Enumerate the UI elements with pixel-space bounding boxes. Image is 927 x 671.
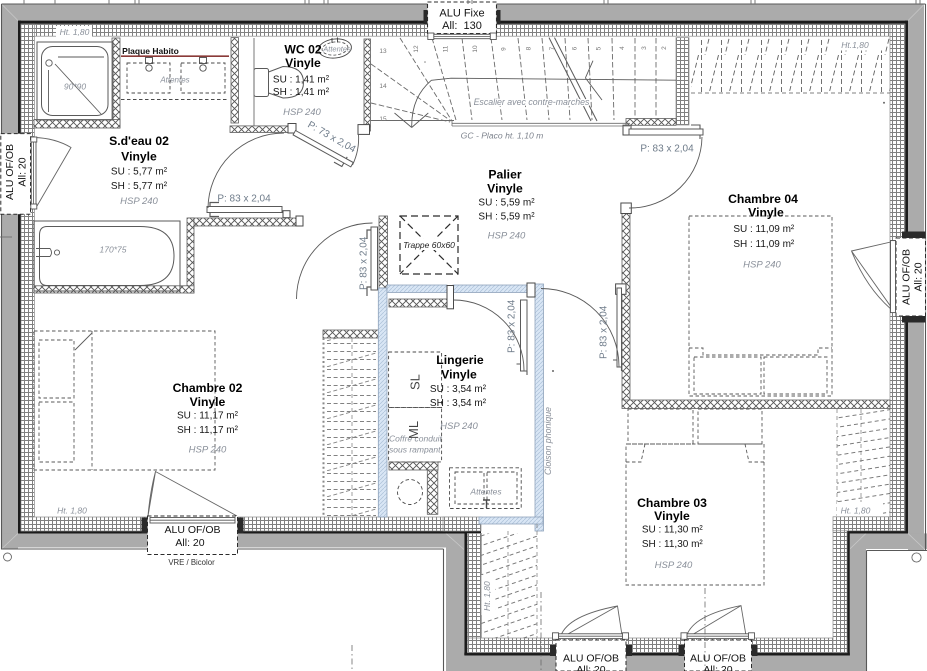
svg-text:ALU OF/OB: ALU OF/OB (4, 144, 16, 200)
svg-text:Vinyle: Vinyle (487, 181, 523, 195)
svg-text:90*90: 90*90 (64, 82, 86, 92)
svg-text:10: 10 (472, 45, 479, 53)
svg-text:Vinyle: Vinyle (285, 56, 321, 70)
svg-text:Ht. 1,80: Ht. 1,80 (57, 506, 87, 516)
svg-text:HSP 240: HSP 240 (120, 196, 158, 207)
svg-text:8: 8 (526, 46, 533, 50)
svg-text:HSP 240: HSP 240 (189, 445, 227, 456)
svg-text:5: 5 (596, 46, 603, 50)
svg-text:All: 20: All: 20 (576, 664, 605, 671)
svg-text:All: 130: All: 130 (442, 20, 482, 32)
svg-text:170*75: 170*75 (100, 245, 127, 255)
svg-text:SH : 3,54 m²: SH : 3,54 m² (430, 398, 487, 409)
svg-text:Attentes: Attentes (322, 45, 351, 54)
svg-text:WC 02: WC 02 (284, 43, 321, 57)
svg-text:P: 83 x 2,04: P: 83 x 2,04 (507, 299, 518, 353)
svg-text:sous rampant: sous rampant (389, 445, 441, 455)
svg-text:Chambre 03: Chambre 03 (637, 496, 707, 510)
svg-text:4: 4 (619, 46, 626, 50)
svg-text:Chambre 02: Chambre 02 (173, 381, 243, 395)
svg-text:ALU OF/OB: ALU OF/OB (901, 249, 913, 305)
svg-text:SL: SL (408, 374, 423, 390)
svg-text:Vinyle: Vinyle (654, 509, 690, 523)
svg-text:Vinyle: Vinyle (190, 395, 226, 409)
svg-text:12: 12 (413, 45, 420, 53)
svg-text:Vinyle: Vinyle (121, 150, 157, 164)
svg-text:HSP 240: HSP 240 (440, 421, 478, 432)
svg-text:Ht. 1,80: Ht. 1,80 (60, 27, 90, 37)
svg-text:SU : 11,17 m²: SU : 11,17 m² (177, 411, 239, 422)
svg-text:Ht. 1,80: Ht. 1,80 (841, 506, 871, 516)
svg-text:Ht.1,80: Ht.1,80 (841, 40, 869, 50)
svg-text:Cloison phonique: Cloison phonique (543, 407, 553, 475)
svg-text:Attentes: Attentes (469, 487, 502, 497)
svg-text:All: 20: All: 20 (913, 262, 925, 291)
svg-text:SU : 1,41 m²: SU : 1,41 m² (273, 75, 330, 86)
svg-text:HSP 240: HSP 240 (743, 260, 781, 271)
svg-text:13: 13 (379, 48, 387, 55)
svg-text:P: 83 x 2,04: P: 83 x 2,04 (359, 236, 370, 290)
svg-text:HSP 240: HSP 240 (283, 107, 321, 118)
svg-text:Vinyle: Vinyle (441, 368, 477, 382)
svg-text:SH : 5,59 m²: SH : 5,59 m² (478, 212, 535, 223)
svg-text:ALU OF/OB: ALU OF/OB (164, 524, 220, 536)
svg-text:Vinyle: Vinyle (748, 206, 784, 220)
svg-text:9: 9 (501, 47, 508, 51)
svg-text:P: 83 x 2,04: P: 83 x 2,04 (640, 144, 694, 155)
svg-text:SH : 5,77 m²: SH : 5,77 m² (111, 181, 168, 192)
svg-text:GC - Placo ht. 1,10 m: GC - Placo ht. 1,10 m (461, 131, 544, 141)
svg-text:ALU OF/OB: ALU OF/OB (690, 653, 746, 665)
svg-text:HSP 240: HSP 240 (488, 230, 526, 241)
svg-text:SU : 3,54 m²: SU : 3,54 m² (430, 384, 487, 395)
svg-text:SU : 11,30 m²: SU : 11,30 m² (642, 524, 704, 535)
svg-text:SH : 11,09 m²: SH : 11,09 m² (733, 239, 795, 250)
svg-text:ALU OF/OB: ALU OF/OB (563, 653, 619, 665)
svg-text:11: 11 (443, 45, 450, 52)
svg-text:Chambre 04: Chambre 04 (728, 192, 798, 206)
svg-text:Plaque Habito: Plaque Habito (122, 46, 179, 56)
svg-text:All: 20: All: 20 (175, 537, 204, 549)
svg-text:ML: ML (406, 421, 421, 439)
svg-text:Escalier avec contre-marches: Escalier avec contre-marches (474, 97, 590, 107)
svg-text:VRE / Bicolor: VRE / Bicolor (168, 558, 215, 567)
svg-text:HSP 240: HSP 240 (655, 560, 693, 571)
svg-text:SU : 5,59 m²: SU : 5,59 m² (478, 197, 535, 208)
svg-text:P: 83 x 2,04: P: 83 x 2,04 (599, 305, 610, 359)
svg-text:6: 6 (572, 46, 579, 50)
svg-text:S.d'eau 02: S.d'eau 02 (109, 134, 169, 148)
svg-text:All: 20: All: 20 (703, 664, 732, 671)
svg-text:All: 20: All: 20 (17, 157, 29, 186)
svg-text:SU : 5,77 m²: SU : 5,77 m² (111, 167, 168, 178)
svg-text:15: 15 (379, 116, 387, 123)
svg-text:SH : 11,17 m²: SH : 11,17 m² (177, 425, 239, 436)
svg-text:Trappe 60x60: Trappe 60x60 (403, 240, 455, 250)
svg-text:3: 3 (641, 46, 648, 50)
svg-text:Palier: Palier (488, 167, 521, 181)
svg-text:SH : 1,41 m²: SH : 1,41 m² (273, 87, 330, 98)
svg-text:2: 2 (661, 46, 668, 50)
svg-text:SH : 11,30 m²: SH : 11,30 m² (642, 539, 704, 550)
svg-text:ALU Fixe: ALU Fixe (439, 7, 484, 19)
svg-text:P: 83 x 2,04: P: 83 x 2,04 (217, 194, 271, 205)
svg-text:7: 7 (549, 46, 556, 50)
svg-text:Ht. 1,80: Ht. 1,80 (482, 581, 492, 611)
svg-text:SU : 11,09 m²: SU : 11,09 m² (733, 224, 795, 235)
svg-text:14: 14 (379, 83, 387, 90)
svg-text:Attentes: Attentes (159, 76, 189, 85)
svg-text:Lingerie: Lingerie (436, 353, 484, 367)
